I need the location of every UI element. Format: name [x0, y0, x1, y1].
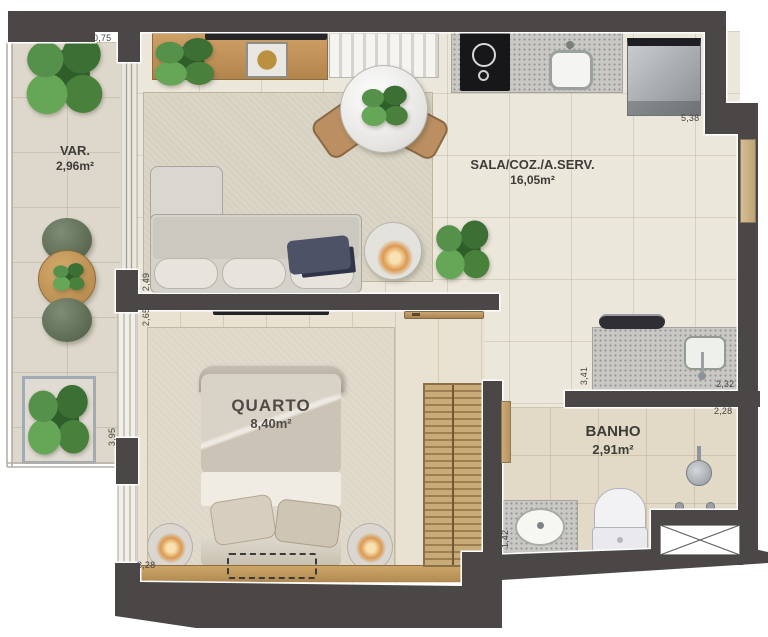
sofa-throw-blanket — [286, 235, 351, 275]
sideboard-plant-icon — [153, 36, 217, 88]
sofa-seat-1 — [154, 258, 218, 289]
kitchen-sink — [549, 50, 593, 90]
wardrobe-divider — [452, 385, 454, 565]
room-label-sala: SALA/COZ./A.SERV. 16,05m² — [430, 157, 635, 188]
wall-segment — [93, 11, 726, 32]
shower-knob-right — [706, 502, 715, 511]
banho-area: 2,91m² — [553, 442, 673, 458]
banho-name: BANHO — [553, 423, 673, 442]
nightstand-lamp-right — [356, 533, 386, 563]
balcony-pouf-bottom — [42, 298, 92, 342]
sala-name: SALA/COZ./A.SERV. — [430, 157, 635, 173]
quarto-name: QUARTO — [181, 395, 361, 416]
bed-pillow-right — [274, 498, 343, 548]
decor-tray — [246, 42, 288, 78]
nightstand-lamp-left — [156, 533, 186, 563]
balcony-table-plant-icon — [52, 262, 86, 292]
side-table-lamp — [377, 240, 413, 276]
sliding-door-handle — [412, 313, 420, 316]
dim-banho-left: 1,42 — [500, 526, 510, 552]
bedroom-window-lower — [118, 484, 136, 563]
room-label-banho: BANHO 2,91m² — [553, 423, 673, 458]
dim-balcony-top: 0,75 — [93, 33, 111, 43]
dim-service-right: 2,32 — [716, 379, 734, 389]
ac-dashed-outline — [227, 553, 317, 579]
cooktop-burner-small — [478, 70, 489, 81]
dim-banho-top-right: 2,28 — [714, 406, 732, 416]
fridge — [627, 38, 701, 116]
toilet-flush-button — [617, 537, 623, 543]
sofa-seat-2 — [222, 258, 286, 289]
floor-plan: VAR. 2,96m² SALA/COZ./A.SERV. 16,05m² QU… — [0, 0, 768, 637]
quarto-area: 8,40m² — [181, 416, 361, 432]
tank-faucet-knob — [698, 372, 706, 380]
sofa-plant-icon — [434, 218, 492, 282]
bathroom-faucet — [537, 522, 544, 529]
dining-table-plant-icon — [360, 84, 410, 128]
varanda-area: 2,96m² — [22, 159, 128, 174]
dim-service-left: 3,41 — [579, 363, 589, 389]
laundry-tank — [684, 336, 726, 370]
tv-bedroom — [213, 307, 329, 315]
wall-segment — [738, 404, 758, 554]
shower-head — [686, 460, 712, 486]
dim-sala-top-right: 5,38 — [681, 113, 699, 123]
kitchen-faucet — [566, 41, 574, 49]
room-label-quarto: QUARTO 8,40m² — [181, 395, 361, 433]
dim-quarto-left: 2,65 — [141, 304, 151, 330]
balcony-plant-icon — [24, 32, 106, 118]
cooktop-burner-large — [472, 43, 496, 67]
washing-machine — [599, 314, 665, 329]
tv-sideboard — [205, 31, 327, 40]
entry-door — [740, 139, 756, 223]
dim-sala-left: 2,49 — [141, 269, 151, 295]
sala-area: 16,05m² — [430, 173, 635, 188]
dim-quarto-bottom: 3,28 — [137, 560, 155, 570]
varanda-name: VAR. — [22, 143, 128, 159]
shower-knob-left — [675, 502, 684, 511]
bathroom-door — [501, 401, 511, 463]
dim-balcony-left: 3,95 — [107, 424, 117, 450]
wall-segment — [738, 404, 758, 554]
bedroom-window-upper — [118, 312, 136, 438]
planter-plant-icon — [26, 382, 92, 458]
room-label-varanda: VAR. 2,96m² — [22, 143, 128, 174]
wall-segment — [93, 11, 726, 32]
